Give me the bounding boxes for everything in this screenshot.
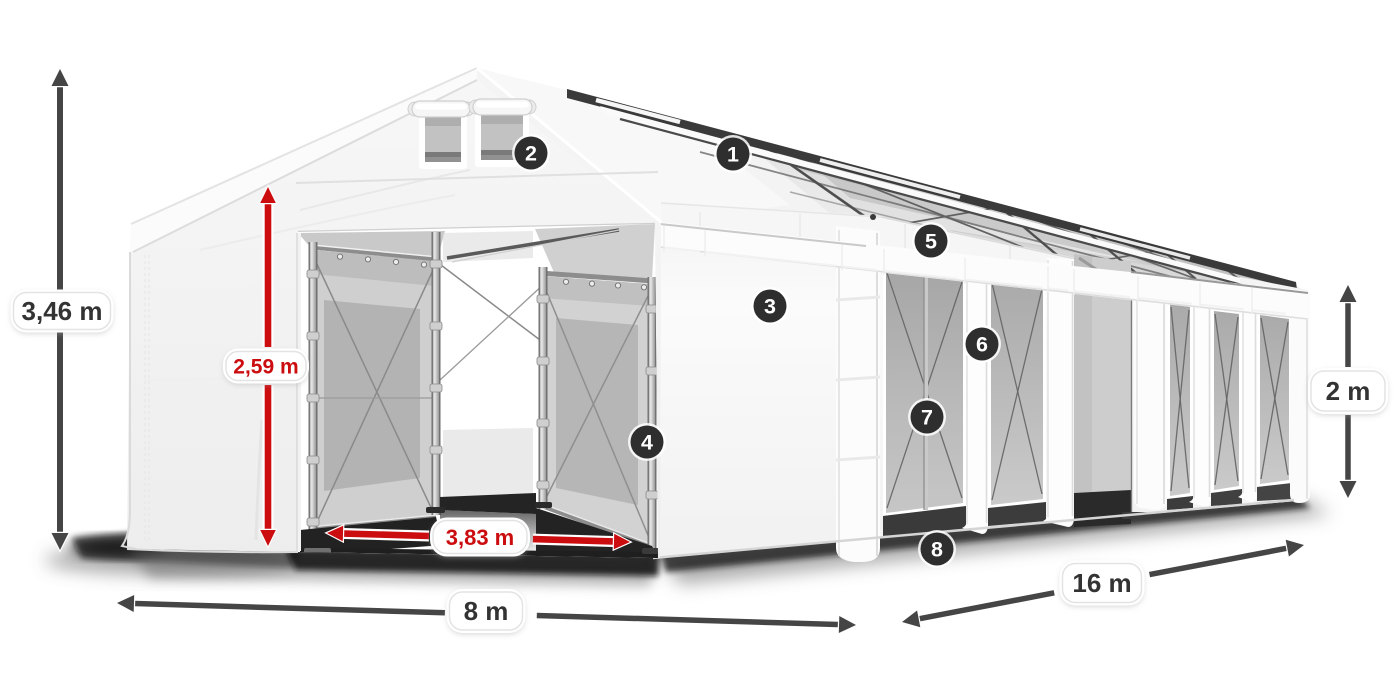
svg-text:3,83 m: 3,83 m [446,525,515,550]
svg-text:16 m: 16 m [1072,568,1131,598]
svg-text:3: 3 [764,295,776,319]
svg-text:4: 4 [641,431,653,455]
svg-text:2: 2 [525,142,537,166]
svg-text:2 m: 2 m [1326,376,1371,406]
svg-text:6: 6 [976,333,988,357]
svg-text:7: 7 [921,406,933,430]
svg-text:5: 5 [925,230,937,254]
svg-text:1: 1 [727,143,739,167]
svg-text:2,59 m: 2,59 m [233,356,298,379]
svg-text:8: 8 [931,538,943,562]
svg-text:8 m: 8 m [464,596,509,626]
svg-text:3,46 m: 3,46 m [22,296,103,326]
